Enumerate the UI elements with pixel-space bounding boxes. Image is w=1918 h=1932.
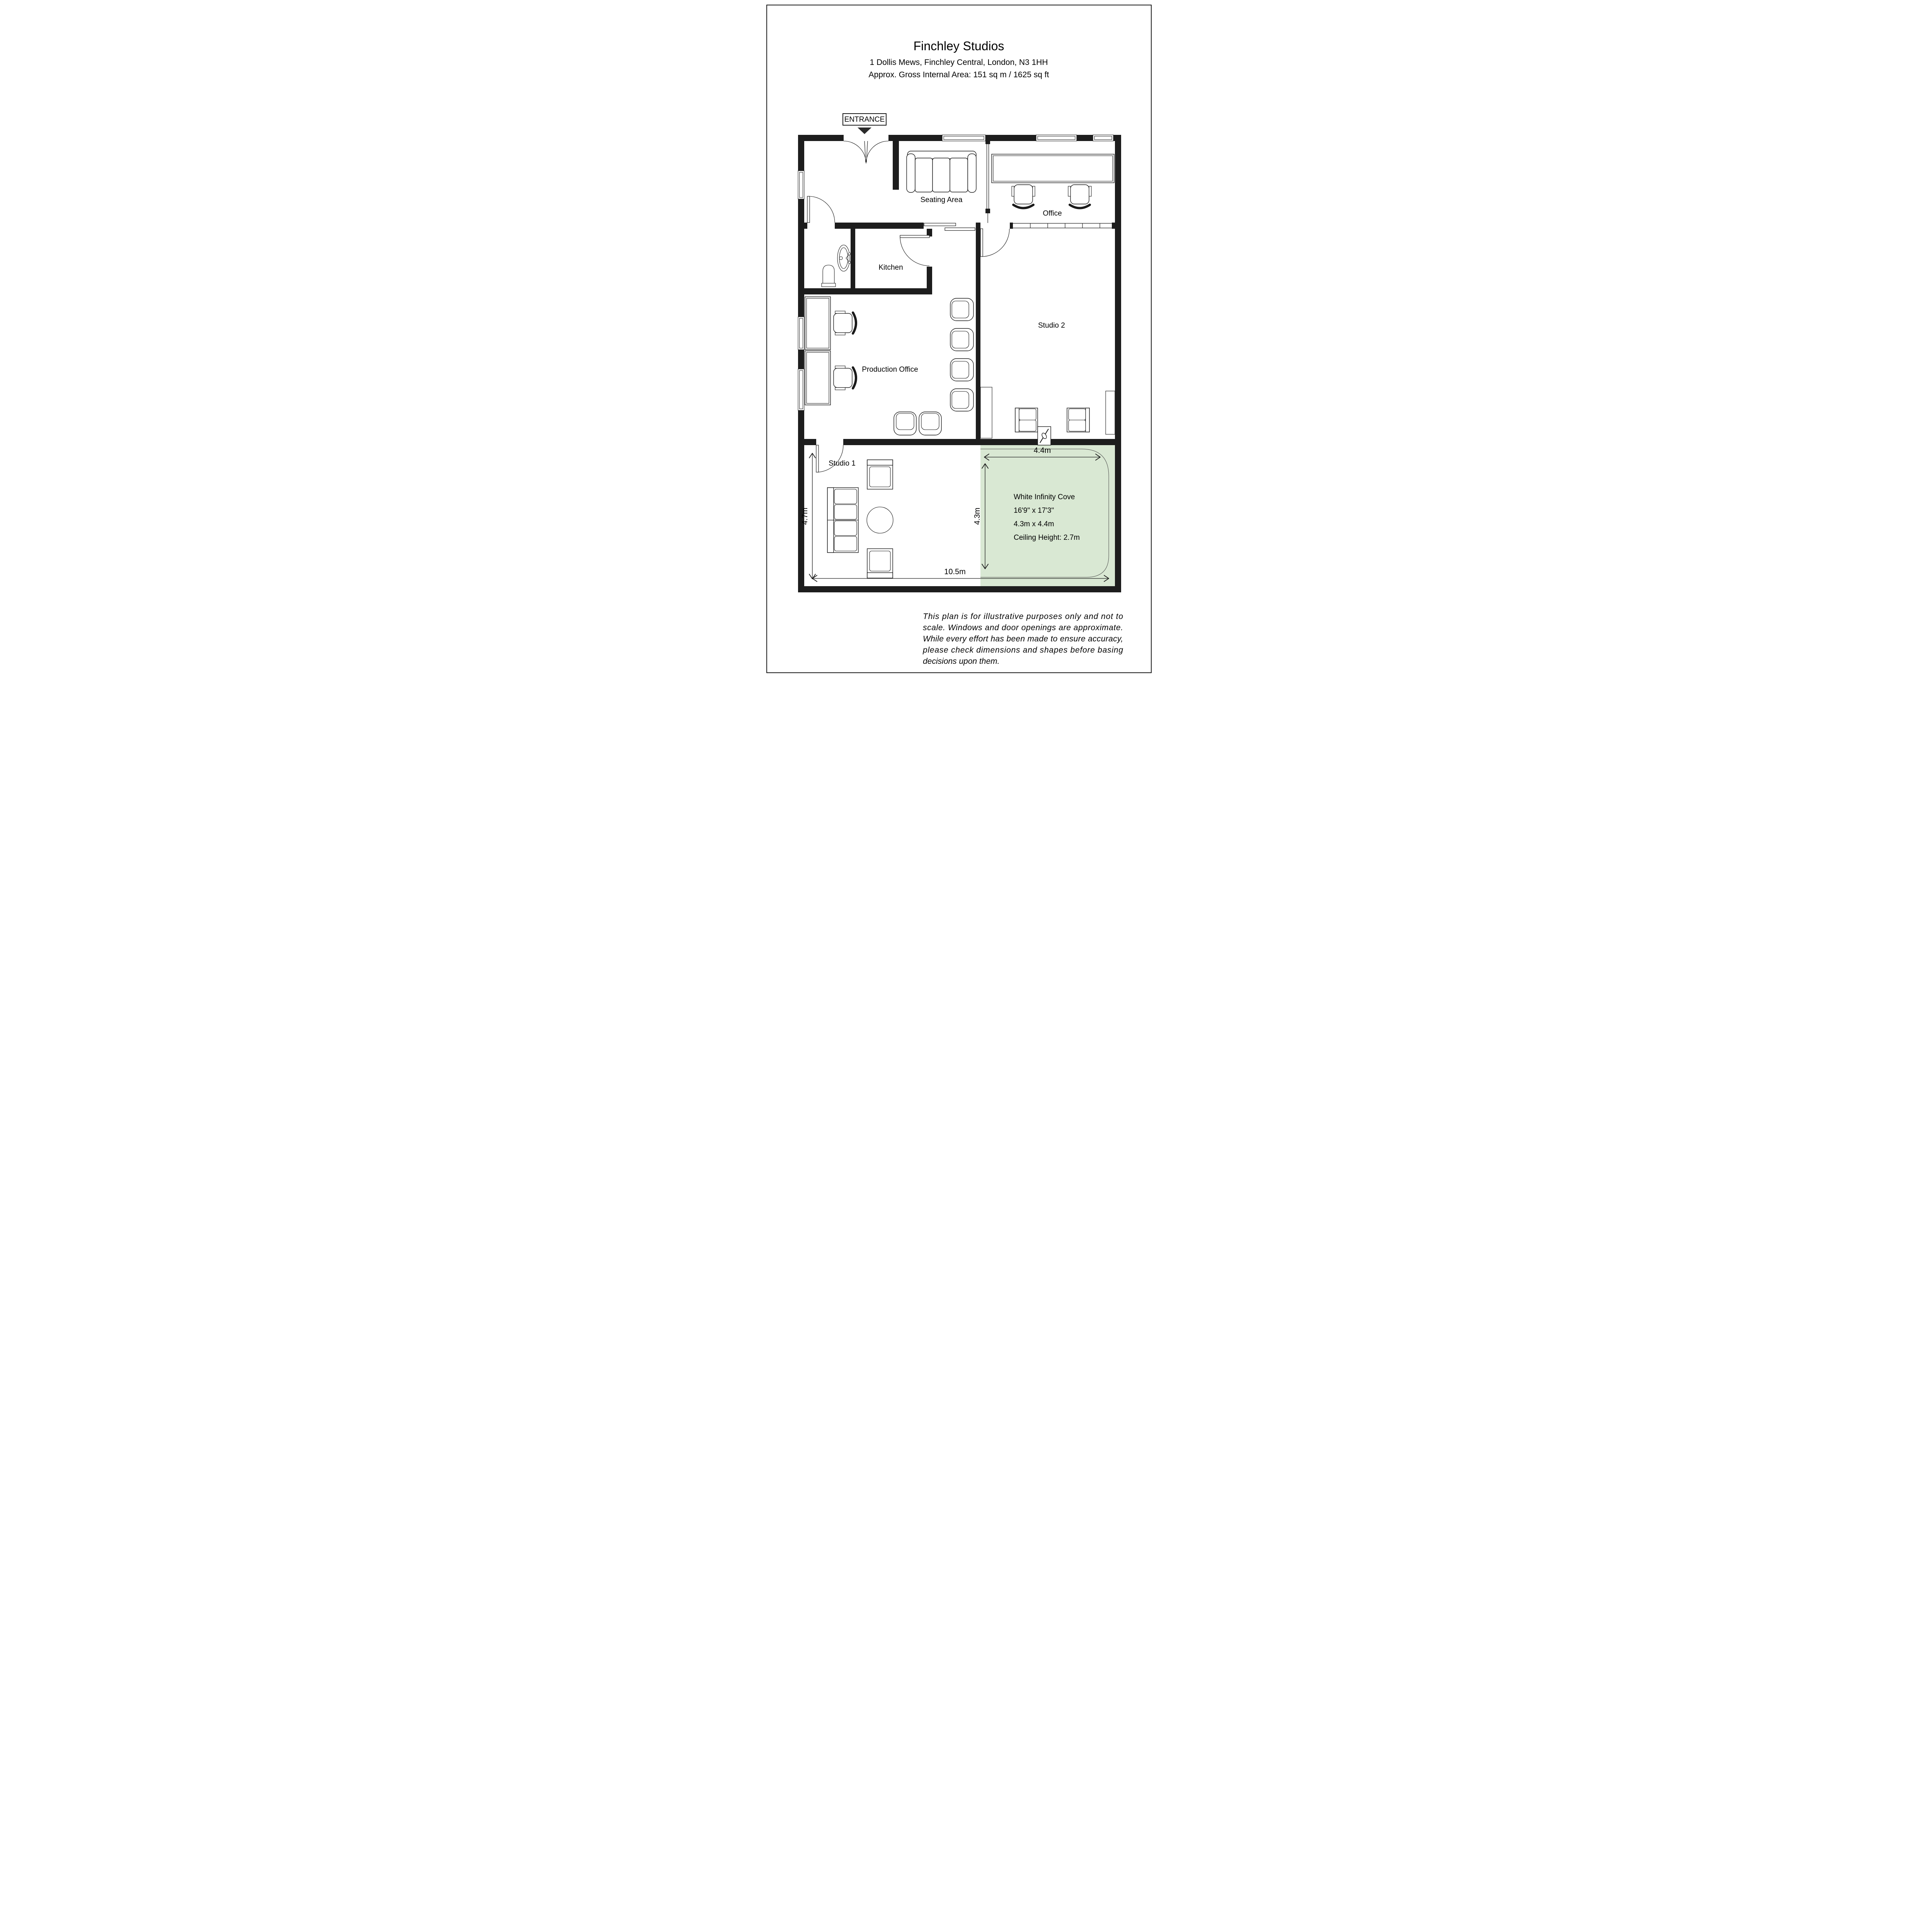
- po-desk-2: [805, 351, 831, 405]
- wall-h3-a: [804, 439, 816, 445]
- office-desk: [992, 154, 1114, 183]
- window-top-seating: [942, 135, 985, 141]
- floorplan-page: Finchley Studios 1 Dollis Mews, Finchley…: [719, 0, 1199, 678]
- glazed-band-post-right: [1112, 223, 1115, 229]
- window-top-office-1: [1036, 135, 1077, 141]
- dim-label-4-3m: 4.3m: [973, 508, 982, 525]
- glazed-band: [1013, 223, 1112, 228]
- window-left-po-1: [798, 317, 804, 350]
- wall-h3-b: [843, 439, 1115, 445]
- wall-wc-kitchen: [851, 229, 855, 288]
- po-desk-1: [805, 297, 831, 350]
- studio2-loveseat-2: [1067, 408, 1089, 432]
- label-studio-2: Studio 2: [1038, 321, 1065, 330]
- wc-toilet: [822, 265, 836, 287]
- wall-h1-b: [835, 223, 924, 229]
- disclaimer-line-2: scale. Windows and door openings are app…: [923, 623, 1123, 632]
- seating-area-sofa: [907, 151, 976, 192]
- studio2-side-table: [1106, 391, 1115, 434]
- wall-bottom: [798, 586, 1121, 592]
- cove-size-imperial: 16'9" x 17'3": [1014, 507, 1054, 515]
- page-title: Finchley Studios: [914, 39, 1004, 53]
- disclaimer-line-1: This plan is for illustrative purposes o…: [923, 612, 1123, 621]
- disclaimer-line-3: While every effort has been made to ensu…: [923, 634, 1123, 643]
- page-area-line: Approx. Gross Internal Area: 151 sq m / …: [869, 70, 1049, 79]
- label-studio-1: Studio 1: [829, 459, 856, 468]
- po-armchair-3: [950, 359, 973, 381]
- po-armchair-2: [950, 328, 973, 351]
- studio1-armchair-2: [867, 549, 893, 578]
- cove-ceiling-height: Ceiling Height: 2.7m: [1014, 534, 1080, 542]
- label-production-office: Production Office: [862, 366, 918, 374]
- page-address: 1 Dollis Mews, Finchley Central, London,…: [870, 58, 1048, 67]
- dim-label-4-7m: 4.7m: [801, 508, 809, 525]
- wall-top-right: [888, 135, 1121, 141]
- studio1-armchair-1: [867, 460, 893, 489]
- cove-name: White Infinity Cove: [1014, 493, 1075, 501]
- window-top-office-2: [1093, 135, 1113, 141]
- wall-kitchen-bottom: [804, 288, 932, 294]
- label-seating-area: Seating Area: [921, 196, 963, 204]
- studio2-paper-roll: [980, 387, 992, 438]
- wall-top-left: [798, 135, 844, 141]
- wall-right: [1115, 135, 1121, 592]
- wall-hall-stub: [893, 141, 899, 190]
- glazed-band-post-left: [1010, 223, 1013, 229]
- partition-post-mid: [985, 209, 990, 213]
- label-kitchen: Kitchen: [878, 264, 903, 272]
- studio2-loveseat-1: [1015, 408, 1038, 432]
- po-guest-chair-2: [919, 412, 941, 435]
- cove-area: [980, 445, 1115, 586]
- po-armchair-1: [950, 298, 973, 321]
- partition-post-top: [985, 141, 990, 144]
- wall-h1-a: [804, 223, 807, 229]
- infinity-cove-zone: White Infinity Cove 16'9" x 17'3" 4.3m x…: [980, 445, 1115, 586]
- window-left-po-2: [798, 369, 804, 410]
- disclaimer-line-4: please check dimensions and shapes befor…: [922, 646, 1123, 655]
- cove-size-metric: 4.3m x 4.4m: [1014, 520, 1054, 528]
- dim-label-4-4m: 4.4m: [1034, 446, 1051, 455]
- studio2-light-fixture: [1038, 427, 1051, 445]
- disclaimer-line-5: decisions upon them.: [923, 657, 999, 666]
- po-guest-chair-1: [894, 412, 916, 435]
- floorplan-canvas: Finchley Studios 1 Dollis Mews, Finchley…: [719, 0, 1199, 678]
- wall-po-studio2: [976, 223, 980, 445]
- studio1-sofa: [827, 488, 858, 553]
- entrance-label: ENTRANCE: [844, 116, 885, 124]
- window-left-hall: [798, 171, 804, 199]
- studio1-round-table: [867, 507, 893, 533]
- label-office: Office: [1043, 209, 1062, 218]
- wall-kitchen-right-b: [927, 267, 932, 288]
- po-armchair-4: [950, 389, 973, 411]
- dim-label-10-5m: 10.5m: [944, 568, 966, 576]
